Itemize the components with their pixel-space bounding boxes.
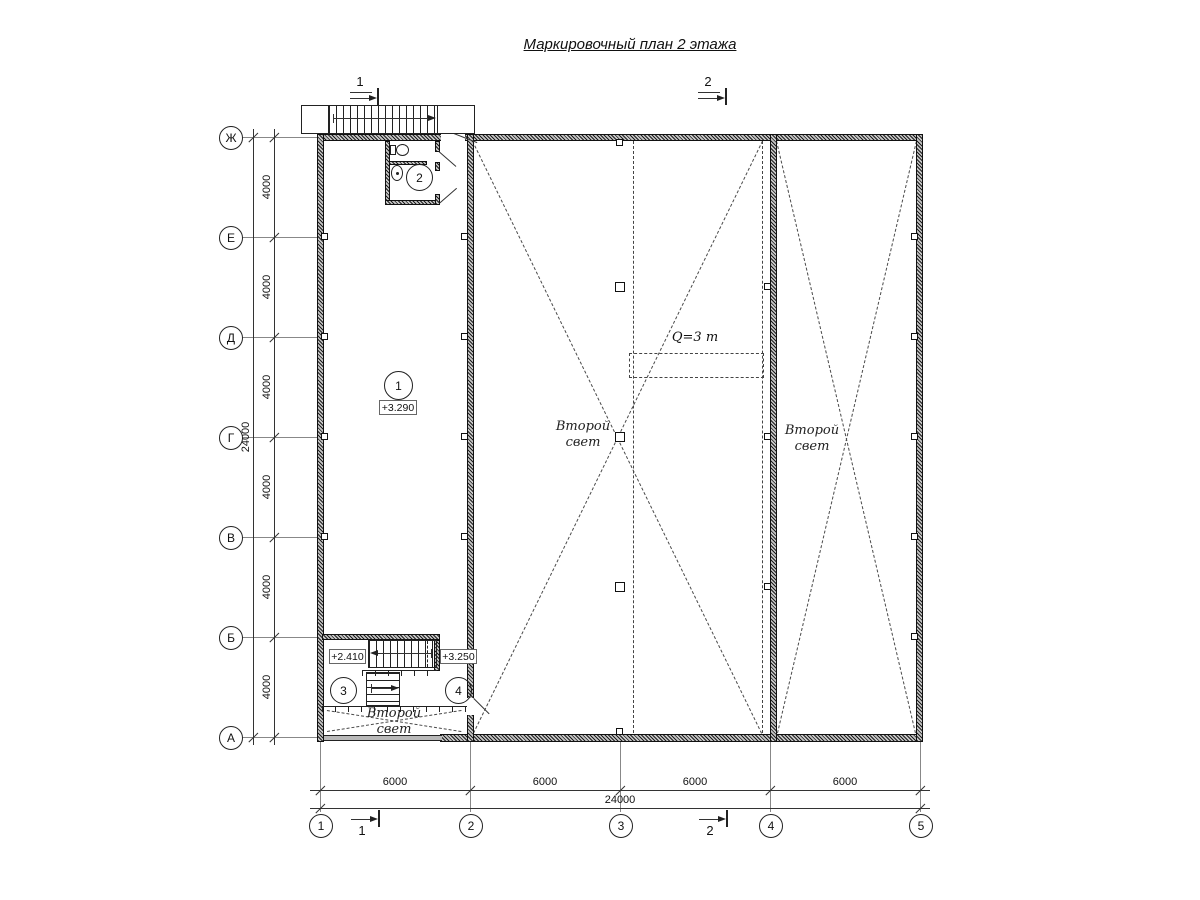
room-3-bubble: 3 [330,677,357,704]
section-mark-2-bottom-bar [726,810,728,827]
stair-arrowhead-icon [428,115,436,121]
axis-col-bubble-5: 5 [909,814,933,838]
pilaster [321,533,328,540]
elevation-mark-room-4: +3.250 [440,649,477,664]
dim-label-4000: 4000 [261,275,273,299]
dim-line-horizontal-overall [310,808,930,809]
section-mark-1-bottom-arrowhead-icon [370,816,378,822]
crane-capacity-label: Q=3 т [655,330,735,345]
section-mark-2-bottom-label: 2 [700,823,720,838]
section-mark-2-top-arrowhead-icon [717,95,725,101]
axis-col-label: 2 [468,819,475,833]
pilaster [911,533,918,540]
room-number: 4 [455,684,462,698]
room-number: 2 [416,171,423,185]
dim-label-4000: 4000 [261,475,273,499]
dim-label-6000: 6000 [375,776,415,788]
dim-label-6000: 6000 [675,776,715,788]
pilaster [321,433,328,440]
elevation-mark-room-1: +3.290 [379,400,417,415]
axis-row-label: Г [228,431,235,445]
pilaster [764,283,771,290]
section-mark-2-top-arrow-line [698,98,718,99]
dim-label-6000: 6000 [825,776,865,788]
axis-col-label: 5 [918,819,925,833]
axis-col-line [470,742,471,812]
axis-col-line [770,742,771,812]
pilaster [911,233,918,240]
stair-direction-line [377,653,432,654]
axis-row-label: Е [227,231,235,245]
pilaster [911,433,918,440]
pilaster [764,583,771,590]
elevation-mark-room-3: +2.410 [329,649,366,664]
axis-row-bubble-V: В [219,526,243,550]
room-number: 1 [395,379,402,393]
section-mark-2-top-underline [698,92,720,93]
stair-arrowhead-icon [391,685,399,691]
pilaster [321,333,328,340]
pilaster [461,333,468,340]
double-height-label: Второй свет [551,419,615,450]
dim-label-4000: 4000 [261,575,273,599]
wall-bottom-left [317,735,442,741]
axis-row-bubble-G: Г [219,426,243,450]
section-mark-2-top-bar [725,88,727,105]
axis-row-bubble-E: Е [219,226,243,250]
pilaster [321,233,328,240]
wc-wall-right [435,162,440,171]
room-2-bubble: 2 [406,164,433,191]
void-edge-line [322,706,467,712]
pilaster [911,333,918,340]
axis-row-bubble-D: Д [219,326,243,350]
wc-wall-bottom [385,200,440,205]
axis-row-label: Ж [225,131,236,145]
pilaster [616,139,623,146]
axis-col-line [320,742,321,812]
axis-row-label: Б [227,631,235,645]
section-mark-1-top-label: 1 [350,74,370,89]
axis-row-bubble-Zh: Ж [219,126,243,150]
axis-row-bubble-B: Б [219,626,243,650]
room-1-bubble: 1 [384,371,413,400]
section-mark-1-top-arrowhead-icon [369,95,377,101]
drawing-sheet: Маркировочный план 2 этажа 1 2 24000 400… [0,0,1200,900]
dim-label-6000: 6000 [525,776,565,788]
section-mark-1-bottom-arrow-line [351,819,371,820]
axis-col-bubble-4: 4 [759,814,783,838]
double-height-label: Второй свет [780,423,844,454]
room-number: 3 [340,684,347,698]
pilaster [616,728,623,735]
axis-row-label: А [227,731,235,745]
wall-axis-4 [770,134,777,742]
stair-break-line [427,641,428,667]
axis-col-line [920,742,921,812]
section-mark-1-top-bar [377,88,379,105]
section-mark-1-top-arrow-line [350,98,370,99]
pilaster [911,633,918,640]
section-mark-1-bottom-label: 1 [352,823,372,838]
axis-col-label: 4 [768,819,775,833]
section-mark-2-top-label: 2 [698,74,718,89]
wall-bottom [440,734,923,742]
pilaster [461,533,468,540]
dim-label-4000: 4000 [261,375,273,399]
column [615,432,625,442]
toilet-bowl-icon [396,144,409,156]
room-4-bubble: 4 [445,677,472,704]
column [615,582,625,592]
axis-col-label: 1 [318,819,325,833]
pilaster [764,433,771,440]
section-mark-1-top-underline [350,92,372,93]
door-leaf [438,151,456,167]
dim-label-4000: 4000 [261,175,273,199]
stair-direction-line [371,688,393,689]
crane-rail-line [762,141,763,733]
axis-col-bubble-2: 2 [459,814,483,838]
axis-row-label: В [227,531,235,545]
crane-rail-line [633,141,634,733]
sink-drain-icon [396,172,399,175]
section-mark-2-bottom-arrowhead-icon [718,816,726,822]
pilaster [461,233,468,240]
dim-label-horizontal-overall: 24000 [595,794,645,806]
section-mark-2-bottom-arrow-line [699,819,719,820]
axis-col-bubble-1: 1 [309,814,333,838]
door-opening [441,133,465,142]
axis-col-bubble-3: 3 [609,814,633,838]
stair-direction-line [333,118,429,119]
exterior-stair-treads [328,105,438,134]
dim-label-4000: 4000 [261,675,273,699]
crane-bridge-outline [629,353,764,378]
pilaster [461,433,468,440]
dim-line-vertical-overall [253,129,254,745]
door-leaf [439,188,457,204]
stair-arrowhead-icon [370,650,378,656]
section-mark-1-bottom-bar [378,810,380,827]
column [615,282,625,292]
axis-row-label: Д [227,331,235,345]
axis-col-label: 3 [618,819,625,833]
drawing-title: Маркировочный план 2 этажа [455,36,805,53]
axis-row-bubble-A: А [219,726,243,750]
